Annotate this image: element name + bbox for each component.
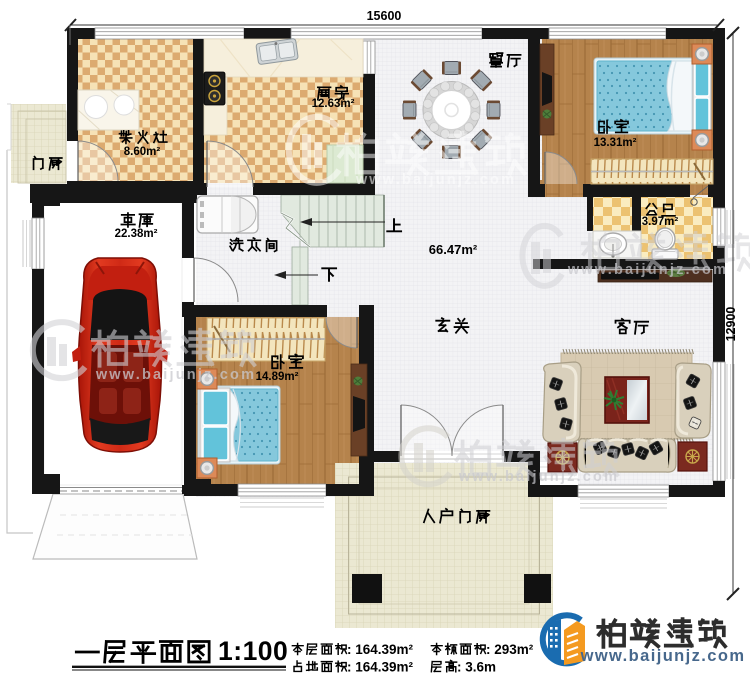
svg-text:66.47m²: 66.47m²	[429, 242, 478, 257]
svg-text:www.baijunjz.com: www.baijunjz.com	[458, 469, 619, 485]
svg-text:12.63m²: 12.63m²	[312, 98, 355, 110]
svg-text:12900: 12900	[724, 307, 738, 342]
svg-text:: 164.39m²: : 164.39m²	[347, 642, 414, 657]
svg-text:www.baijunjz.com: www.baijunjz.com	[95, 367, 256, 383]
svg-text:: 293m²: : 293m²	[486, 642, 534, 657]
svg-text:8.60m²: 8.60m²	[124, 146, 161, 158]
svg-text:: 3.6m: : 3.6m	[457, 660, 496, 675]
svg-text:: 164.39m²: : 164.39m²	[347, 660, 414, 675]
svg-text:14.89m²: 14.89m²	[256, 371, 299, 383]
svg-text:www.baijunjz.com: www.baijunjz.com	[580, 647, 746, 665]
svg-text:1:100: 1:100	[218, 636, 288, 666]
svg-text:3.97m²: 3.97m²	[642, 216, 679, 228]
svg-text:22.38m²: 22.38m²	[115, 228, 158, 240]
svg-text:13.31m²: 13.31m²	[594, 137, 637, 149]
svg-text:15600: 15600	[367, 9, 402, 23]
svg-text:www.baijunjz.com: www.baijunjz.com	[567, 262, 728, 278]
svg-text:www.baijunjz.com: www.baijunjz.com	[355, 172, 516, 188]
